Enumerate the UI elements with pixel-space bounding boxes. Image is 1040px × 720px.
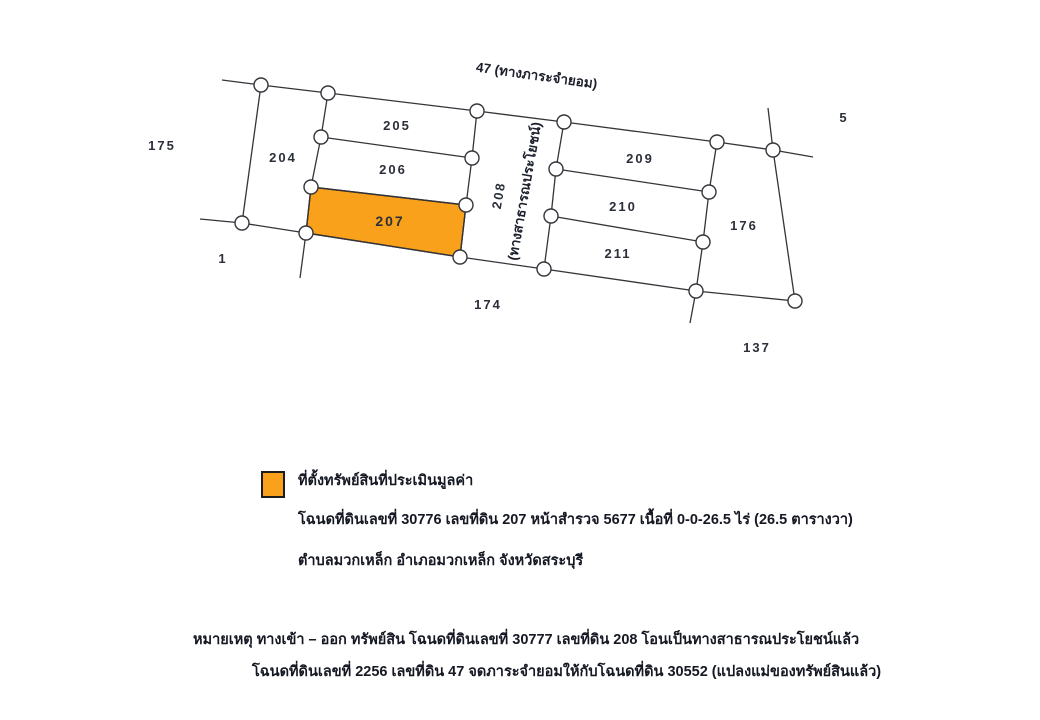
survey-marker: [470, 104, 484, 118]
survey-marker: [304, 180, 318, 194]
survey-marker: [314, 130, 328, 144]
boundary-lines: [200, 80, 813, 323]
note-line-1: หมายเหตุ ทางเข้า – ออก ทรัพย์สิน โฉนดที่…: [193, 632, 859, 649]
parcel-label-204: 204: [269, 150, 297, 165]
parcel-176-right-edge: [768, 108, 795, 301]
survey-marker: [710, 135, 724, 149]
survey-marker: [254, 78, 268, 92]
neighbor-label-174: 174: [474, 297, 502, 312]
note-line-2: โฉนดที่ดินเลขที่ 2256 เลขที่ดิน 47 จดภาร…: [252, 664, 881, 681]
divider-205-206: [321, 137, 472, 158]
survey-marker: [689, 284, 703, 298]
parcel-label-205: 205: [383, 118, 411, 133]
parcel-label-211: 211: [605, 246, 632, 261]
neighbor-label-175: 175: [148, 138, 176, 153]
legend-location-line: ตำบลมวกเหล็ก อำเภอมวกเหล็ก จังหวัดสระบุร…: [298, 553, 583, 570]
road-208-number-label: 208: [489, 180, 509, 210]
bottom-boundary-line: [200, 219, 795, 301]
neighbor-label-5: 5: [839, 110, 848, 125]
divider-210-211: [551, 216, 703, 242]
survey-marker: [544, 209, 558, 223]
parcel-204-left-edge: [242, 85, 261, 223]
parcel-label-206: 206: [379, 162, 407, 177]
survey-marker: [702, 185, 716, 199]
legend-swatch: [261, 471, 285, 498]
road-208-left-edge: [460, 111, 477, 257]
survey-marker: [453, 250, 467, 264]
parcel-label-207: 207: [375, 213, 404, 229]
survey-marker: [299, 226, 313, 240]
survey-marker: [788, 294, 802, 308]
survey-marker: [696, 235, 710, 249]
survey-marker: [321, 86, 335, 100]
survey-marker: [557, 115, 571, 129]
legend-deed-line: โฉนดที่ดินเลขที่ 30776 เลขที่ดิน 207 หน้…: [298, 512, 853, 529]
road-47-label: 47 (ทางภาระจำยอม): [475, 60, 598, 92]
legend-title: ที่ตั้งทรัพย์สินที่ประเมินมูลค่า: [298, 473, 473, 490]
neighbor-label-1: 1: [218, 251, 227, 266]
survey-page: 47 (ทางภาระจำยอม) 204 205 206 207 209 21…: [0, 0, 1040, 720]
parcel-label-176: 176: [730, 218, 758, 233]
parcel-label-210: 210: [609, 199, 637, 214]
road-47-line: [222, 80, 813, 157]
road-208-name-label: (ทางสาธารณประโยชน์): [503, 121, 544, 262]
divider-209-210: [556, 169, 709, 192]
survey-marker: [537, 262, 551, 276]
parcel-map: 47 (ทางภาระจำยอม) 204 205 206 207 209 21…: [0, 0, 1040, 440]
survey-marker: [549, 162, 563, 176]
road-208-right-edge: [544, 122, 564, 269]
survey-marker: [766, 143, 780, 157]
survey-marker: [465, 151, 479, 165]
neighbor-label-137: 137: [743, 340, 771, 355]
survey-marker: [235, 216, 249, 230]
survey-marker: [459, 198, 473, 212]
parcel-label-209: 209: [626, 151, 654, 166]
